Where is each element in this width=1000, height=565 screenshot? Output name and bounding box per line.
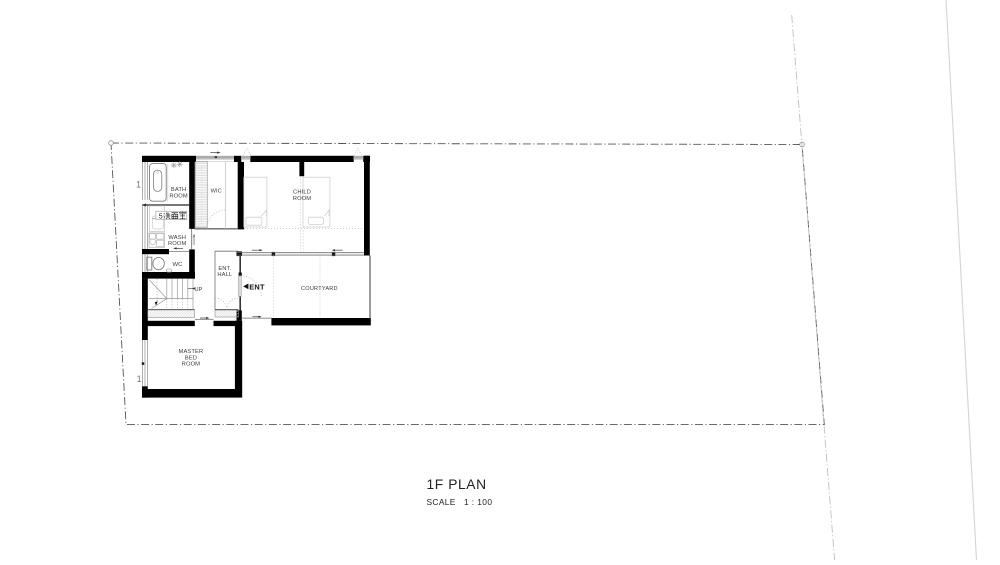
svg-text:1F PLAN: 1F PLAN [427,477,487,492]
svg-text:BED: BED [185,355,197,361]
svg-text:HALL: HALL [217,272,233,278]
svg-text:WIC: WIC [211,188,222,194]
svg-text:ROOM: ROOM [182,362,201,368]
svg-text:ENT.: ENT. [218,266,231,272]
svg-text:WC: WC [172,262,183,268]
svg-text:ROOM: ROOM [169,193,188,199]
svg-text:ROOM: ROOM [293,196,312,202]
svg-text:COURTYARD: COURTYARD [301,286,338,292]
svg-text:ENT: ENT [249,283,265,292]
svg-text:BATH: BATH [171,187,186,193]
svg-text:5: 5 [159,213,163,220]
svg-text:SCALE: SCALE [427,497,456,507]
svg-text:1: 1 [136,180,141,190]
svg-text:1 : 100: 1 : 100 [464,497,492,507]
svg-text:1: 1 [137,374,142,384]
svg-text:UP: UP [195,287,203,293]
svg-text:CHILD: CHILD [293,189,311,195]
svg-text:ROOM: ROOM [168,241,187,247]
svg-text:WASH: WASH [168,235,186,241]
svg-text:MASTER: MASTER [179,349,204,355]
